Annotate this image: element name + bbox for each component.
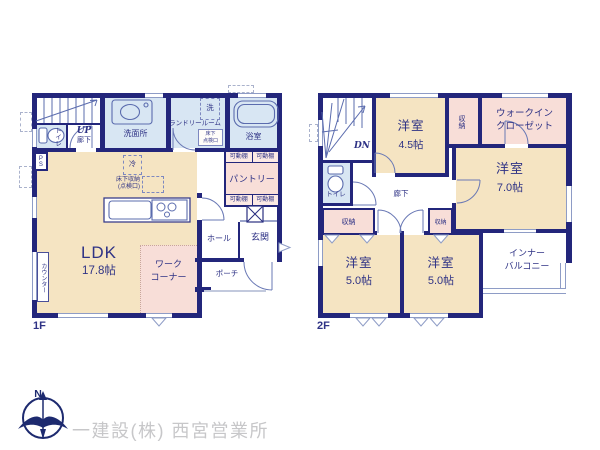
room-70-name: 洋室 [484,162,536,177]
wall [479,233,483,318]
wall [238,222,240,258]
wall [372,93,376,177]
balcony-rail [483,288,566,294]
window [58,313,108,318]
wall [197,193,202,198]
window [566,186,572,222]
floor1-label: 1F [33,320,59,333]
room-washroom [105,98,166,148]
toilet-label-2f: トイレ [322,191,350,198]
exterior-unit-dashed-box [228,85,254,93]
movable-shelf-row-top: 可動棚 可動棚 [226,152,278,163]
wall [66,123,68,148]
hall-label: ホール [203,234,235,243]
underfloor-line1: 床下収納 [102,177,140,184]
balcony-line1: インナー [497,247,557,260]
room-toilet-1f [37,125,66,148]
underfloor-storage-dashed-box [142,176,164,193]
movable-shelf-label: 可動棚 [226,152,253,162]
wall [350,163,353,206]
work-line1: ワーク [142,258,195,271]
stairs-up-label: UP [70,126,98,136]
movable-shelf-label: 可動棚 [226,195,253,205]
north-label: N [31,388,45,400]
ldk-name-label: LDK [60,243,138,263]
fridge-label: 冷 [123,161,142,169]
window [238,93,266,98]
entrance-step-line [240,220,277,222]
room-45 [376,98,445,173]
wall [322,203,353,206]
underfloor-line2: (点検口) [102,184,140,191]
closet-top-label: 収納 [457,106,465,138]
exterior-unit-dashed-box [20,112,32,132]
exterior-unit-dashed-box [309,124,318,142]
window [502,93,548,98]
wall [322,160,376,163]
room-50a [322,235,400,313]
toilet-label-1f: トイレ [53,126,60,148]
window [350,313,388,318]
window [32,252,37,300]
window [410,313,448,318]
closet-label: 収納 [342,217,356,227]
porch-step-line [204,290,266,292]
floorplan-canvas: 可動棚 可動棚 パントリー 可動棚 可動棚 床下 点検口 UP 廊下 トイレ P… [0,0,600,450]
closet-box-50b: 収納 [428,208,453,235]
hatch-label-line1: 床下 [199,131,222,138]
entrance-label: 玄関 [246,232,274,242]
closet-label: 収納 [434,217,446,226]
work-line2: コーナー [142,271,195,284]
wall [395,173,449,177]
wic-line1: ウォークイン [483,107,566,120]
pipe-space-label: PS [37,154,44,170]
wall [445,93,449,177]
ldk-size-label: 17.8帖 [60,265,138,278]
room-50a-name: 洋室 [329,256,389,270]
pantry-block: 可動棚 可動棚 パントリー 可動棚 可動棚 [224,150,280,207]
underfloor-hatch-box: 床下 点検口 [198,129,223,146]
underfloor-storage-label: 床下収納 (点検口) [102,177,140,191]
window [32,197,37,218]
movable-shelf-label: 可動棚 [253,152,279,162]
wall [478,93,482,148]
window [146,313,172,318]
stairs-down-label: DN [349,141,375,151]
window [390,93,438,98]
window [145,93,163,98]
floor2-label: 2F [317,320,343,333]
company-name: 一建設(株) 西宮営業所 [72,417,269,443]
washroom-label: 洗面所 [105,129,166,138]
pantry-label: パントリー [226,163,278,194]
room-50b [404,235,479,313]
window [318,120,323,146]
room-50a-size: 5.0帖 [329,275,389,288]
room-50b-size: 5.0帖 [410,275,472,288]
wall [449,144,505,148]
closet-box-50a: 収納 [322,208,375,235]
room-45-name: 洋室 [385,119,437,133]
room-70-size: 7.0帖 [484,182,536,195]
work-corner-label: ワーク コーナー [142,258,195,284]
wall [195,258,244,262]
wall [96,148,173,152]
bathroom-label: 浴室 [230,132,277,141]
window [504,229,536,233]
washer-label: 洗 [200,104,220,113]
window [32,129,37,147]
room-50b-name: 洋室 [410,256,472,270]
corridor-label-1f: 廊下 [70,137,98,145]
wic-line2: クローゼット [483,120,566,133]
window-marker-icon [152,318,166,326]
hatch-label-line2: 点検口 [199,138,222,145]
movable-shelf-row-bottom: 可動棚 可動棚 [226,194,278,205]
wall [400,231,404,318]
corridor-label-2f: 廊下 [384,190,418,199]
wall [566,93,572,263]
exterior-unit-dashed-box [19,166,32,188]
room-45-size: 4.5帖 [385,139,437,151]
counter-label: カウンター [39,255,46,300]
wall [197,220,202,318]
wall [452,148,456,180]
window [318,240,323,266]
balcony-line2: バルコニー [497,260,557,273]
wall [100,93,105,150]
laundry-label: ランドリールーム [164,120,226,127]
inner-balcony-label: インナー バルコニー [497,247,557,273]
wall [528,144,572,148]
porch-label: ポーチ [206,270,248,279]
movable-shelf-label: 可動棚 [253,195,279,205]
stairs-1f-icon [36,98,97,123]
wic-label: ウォークイン クローゼット [483,107,566,133]
